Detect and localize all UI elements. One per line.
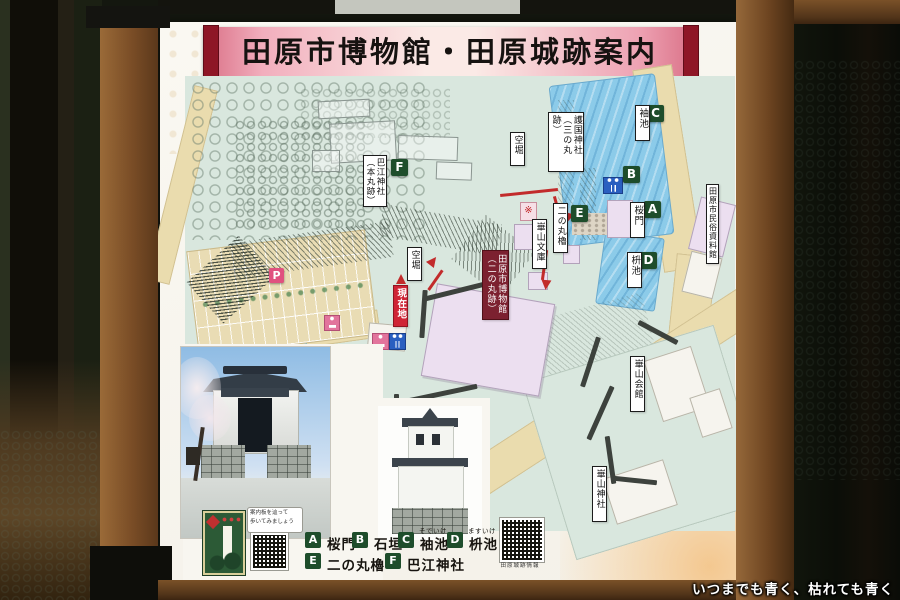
leaf-litter xyxy=(0,430,102,600)
legend-badge-A: A xyxy=(305,532,321,548)
stamp-card xyxy=(202,510,246,576)
frame-post-right xyxy=(736,0,794,600)
label-haie-jinja: 巴江神社 （本丸跡） xyxy=(363,155,387,207)
gokoku-shrine-building3 xyxy=(312,150,340,172)
map-badge-E: E xyxy=(571,205,588,222)
foliage-texture-right xyxy=(794,60,900,480)
banner-end-right xyxy=(683,25,699,81)
legend-qr-code xyxy=(500,518,544,562)
banner-end-left xyxy=(203,25,219,81)
stamp-card-seal xyxy=(206,515,220,529)
photo-signpost xyxy=(186,447,200,465)
legend-label-E: 二の丸櫓 xyxy=(327,554,385,574)
photo-watermark: いつまでも青く、枯れても青く xyxy=(692,578,894,598)
map-badge-B: B xyxy=(623,166,640,183)
title-banner: 田原市博物館・田原城跡案内 xyxy=(203,27,697,77)
stamp-card-pines xyxy=(207,551,241,571)
legend-label-C: 袖池 xyxy=(420,533,449,553)
turret-window-2 xyxy=(432,434,440,445)
frame-top-gap xyxy=(335,0,520,14)
frame-bottom-rail xyxy=(158,580,736,600)
restroom-icon-gate xyxy=(603,177,623,194)
legend-label-D: 枡池 xyxy=(469,533,498,553)
gate-stone-base-left xyxy=(201,445,245,481)
legend-badge-C: C xyxy=(398,532,414,548)
turret-photo xyxy=(378,406,482,540)
frame-post-left xyxy=(100,22,158,600)
stamp-card-flowers xyxy=(221,516,241,523)
current-location-arrow xyxy=(396,274,406,284)
map-badge-A: A xyxy=(644,201,661,218)
label-kazan-kaikan: 崋山会館 xyxy=(630,356,645,412)
label-ninomaru-yagura: 二の丸櫓 xyxy=(553,203,568,253)
label-museum: 田原市博物館 （二の丸跡） xyxy=(482,250,509,320)
legend-badge-B: B xyxy=(352,532,368,548)
inset-qr-code xyxy=(251,533,288,570)
label-masuike: 枡池 xyxy=(627,252,642,288)
turret-window-1 xyxy=(416,434,424,445)
restroom-icon-museum xyxy=(389,333,406,350)
label-sodeike: 袖池 xyxy=(635,105,650,141)
label-current-location: 現在地 xyxy=(393,285,408,327)
gate-roof-mid xyxy=(221,388,289,397)
route-arrow-2 xyxy=(541,280,552,291)
legend-badge-D: D xyxy=(447,532,463,548)
legend-badge-F: F xyxy=(385,553,401,569)
walk-note-line2: 歩いてみましょう xyxy=(250,518,300,527)
gate-stone-base-right xyxy=(267,445,311,481)
wheelchair-icon-parking xyxy=(324,315,340,331)
frame-post-left-cap xyxy=(86,6,170,28)
gate-roof-ridge xyxy=(223,366,287,374)
gate-doorway xyxy=(238,398,272,452)
label-kazan-bunko: 崋山文庫 xyxy=(532,219,547,269)
legend-badge-E: E xyxy=(305,553,321,569)
label-minzoku-shiryokan: 田原市民俗資料館 xyxy=(706,184,719,264)
legend-qr-caption: 田原城跡情報 xyxy=(492,561,548,569)
sign-title: 田原市博物館・田原城跡案内 xyxy=(203,27,697,77)
label-gokoku-jinja: 護国神社 （三の丸跡） xyxy=(548,112,584,172)
legend-label-F: 巴江神社 xyxy=(407,554,465,574)
label-kazan-jinja: 崋山神社 xyxy=(592,466,607,522)
map-badge-D: D xyxy=(640,252,657,269)
cherry-blossom-2 xyxy=(189,395,231,441)
turret-body-lower xyxy=(398,466,464,512)
walk-note-line1: 案内板を辿って xyxy=(250,509,300,518)
walk-note: 案内板を辿って 歩いてみましょう xyxy=(247,507,303,533)
label-karabori-north: 空堀 xyxy=(510,132,525,166)
haie-shrine-building1 xyxy=(398,135,459,161)
map-badge-F: F xyxy=(391,159,408,176)
haie-shrine-building2 xyxy=(436,161,473,180)
label-sakuramon: 桜門 xyxy=(630,202,645,238)
gokoku-shrine-building1 xyxy=(318,99,371,120)
frame-rail-top-right xyxy=(794,0,900,24)
label-karabori-west: 空堀 xyxy=(407,247,422,281)
signboard-photo: 田原市博物館・田原城跡案内 xyxy=(0,0,900,600)
parking-icon: P xyxy=(269,268,284,283)
